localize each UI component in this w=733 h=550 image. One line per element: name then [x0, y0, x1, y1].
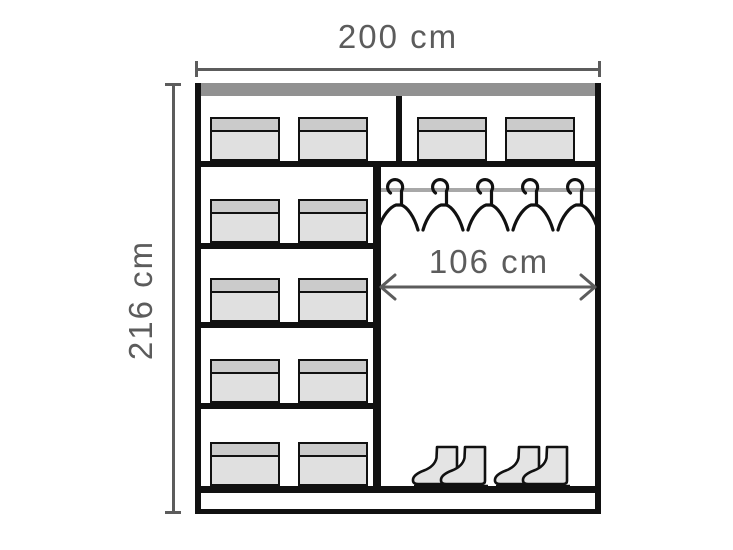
storage-box [505, 117, 575, 161]
hanger-icon [421, 176, 465, 234]
storage-box [298, 278, 368, 322]
storage-box-lid [300, 444, 366, 457]
storage-box-lid [212, 201, 278, 214]
width-dimension-left-tick [195, 61, 198, 77]
hanger-icon [376, 176, 420, 234]
wardrobe-left-side-panel [195, 83, 201, 514]
boots-icon [411, 445, 489, 487]
left-shelf-3 [201, 322, 373, 328]
storage-box-lid [300, 201, 366, 214]
storage-box [210, 442, 280, 486]
storage-box-lid [419, 119, 485, 132]
boots-icon [493, 445, 571, 487]
storage-box-lid [212, 280, 278, 293]
storage-box-lid [507, 119, 573, 132]
top-shelf-divider [201, 161, 595, 167]
storage-box [417, 117, 487, 161]
overall-width-label: 200 cm [338, 18, 458, 56]
storage-box-lid [212, 361, 278, 374]
hanger-icon [556, 176, 600, 234]
top-compartment-divider [396, 96, 402, 161]
storage-box-lid [212, 444, 278, 457]
hanging-section-width-arrow [379, 270, 599, 304]
hanger-icon [511, 176, 555, 234]
wardrobe-dimension-diagram: 200 cm 216 cm [0, 0, 733, 550]
hanger-icon [466, 176, 510, 234]
storage-box [298, 117, 368, 161]
storage-box [298, 359, 368, 403]
left-shelf-2 [201, 243, 373, 249]
width-dimension-right-tick [598, 61, 601, 77]
left-shelf-4 [201, 403, 373, 409]
height-dimension-bottom-tick [165, 511, 181, 514]
storage-box [210, 117, 280, 161]
wardrobe-top-panel [201, 83, 595, 96]
storage-box [210, 199, 280, 243]
storage-box-lid [300, 361, 366, 374]
height-dimension-top-tick [165, 83, 181, 86]
wardrobe-plinth [195, 493, 601, 514]
width-dimension-line [196, 68, 600, 71]
storage-box-lid [212, 119, 278, 132]
storage-box [210, 359, 280, 403]
storage-box [298, 199, 368, 243]
height-dimension-line [172, 84, 175, 513]
storage-box-lid [300, 280, 366, 293]
storage-box [210, 278, 280, 322]
storage-box [298, 442, 368, 486]
overall-height-label: 216 cm [122, 240, 160, 360]
storage-box-lid [300, 119, 366, 132]
